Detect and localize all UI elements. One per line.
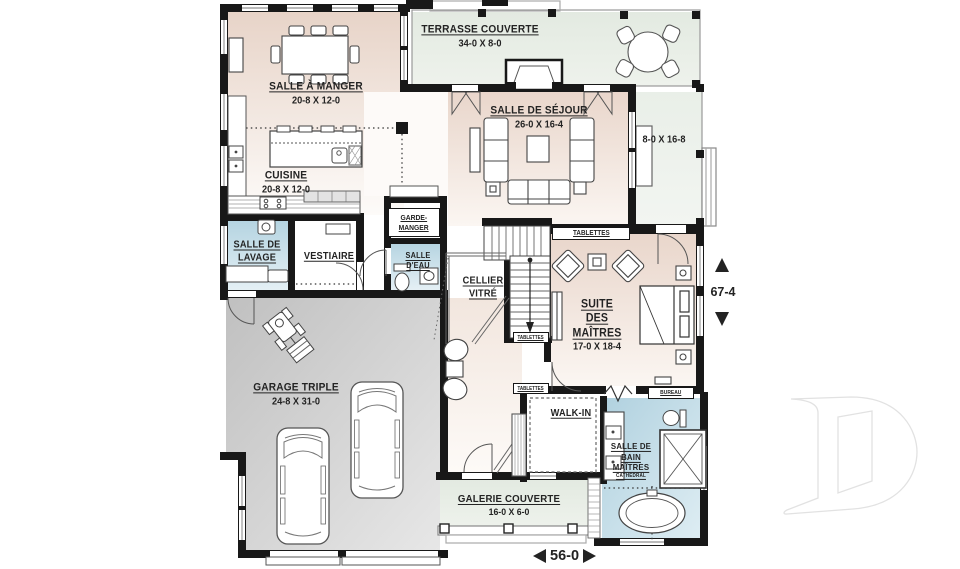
depth-arrow-down-icon	[715, 312, 729, 326]
master-bath-label: SALLE DE BAIN MAÎTRES CATHÉDRAL	[611, 441, 651, 479]
floor-plan-page: { "colors": { "wall": "#181818", "room_w…	[0, 0, 960, 569]
master-bed	[640, 286, 694, 344]
shelves-label-3: TABLETTES	[513, 383, 549, 394]
shelves-label-2: TABLETTES	[513, 332, 549, 343]
fireplace	[506, 60, 562, 91]
pantry-label: GARDE- MANGER	[388, 208, 440, 237]
vestibule-label: VESTIAIRE	[304, 251, 354, 264]
laundry-room-label: SALLE DE LAVAGE	[234, 240, 281, 265]
terrace-label: TERRASSE COUVERTE 34-0 X 8-0	[421, 23, 538, 50]
dining-room-label: SALLE À MANGER 20-8 X 12-0	[269, 80, 363, 107]
office-nook-label: BUREAU	[648, 387, 694, 399]
width-arrow-right-icon	[583, 549, 596, 563]
wine-cellar-label: CELLIER VITRÉ	[463, 276, 504, 301]
kitchen-label: CUISINE 20-8 X 12-0	[262, 169, 310, 196]
powder-room-label: SALLE D'EAU	[405, 251, 430, 271]
depth-arrow-up-icon	[715, 258, 729, 272]
living-room-label: SALLE DE SÉJOUR 26-0 X 16-4	[490, 104, 587, 131]
overall-width-dimension: 56-0	[533, 548, 596, 564]
garage-label: GARAGE TRIPLE 24-8 X 31-0	[253, 381, 339, 408]
walkin-label: WALK-IN	[551, 408, 592, 421]
master-suite-label: SUITE DES MAÎTRES 17-0 X 18-4	[573, 298, 622, 355]
kitchen-island	[270, 126, 362, 167]
brand-logo	[784, 397, 917, 514]
overall-depth-dimension: 67-4	[703, 285, 743, 299]
gallery-label: GALERIE COUVERTE 16-0 X 6-0	[458, 493, 560, 519]
shelves-label-1: TABLETTES	[552, 227, 630, 240]
side-porch-dims: 8-0 X 16-8	[643, 133, 686, 147]
width-arrow-left-icon	[533, 549, 546, 563]
